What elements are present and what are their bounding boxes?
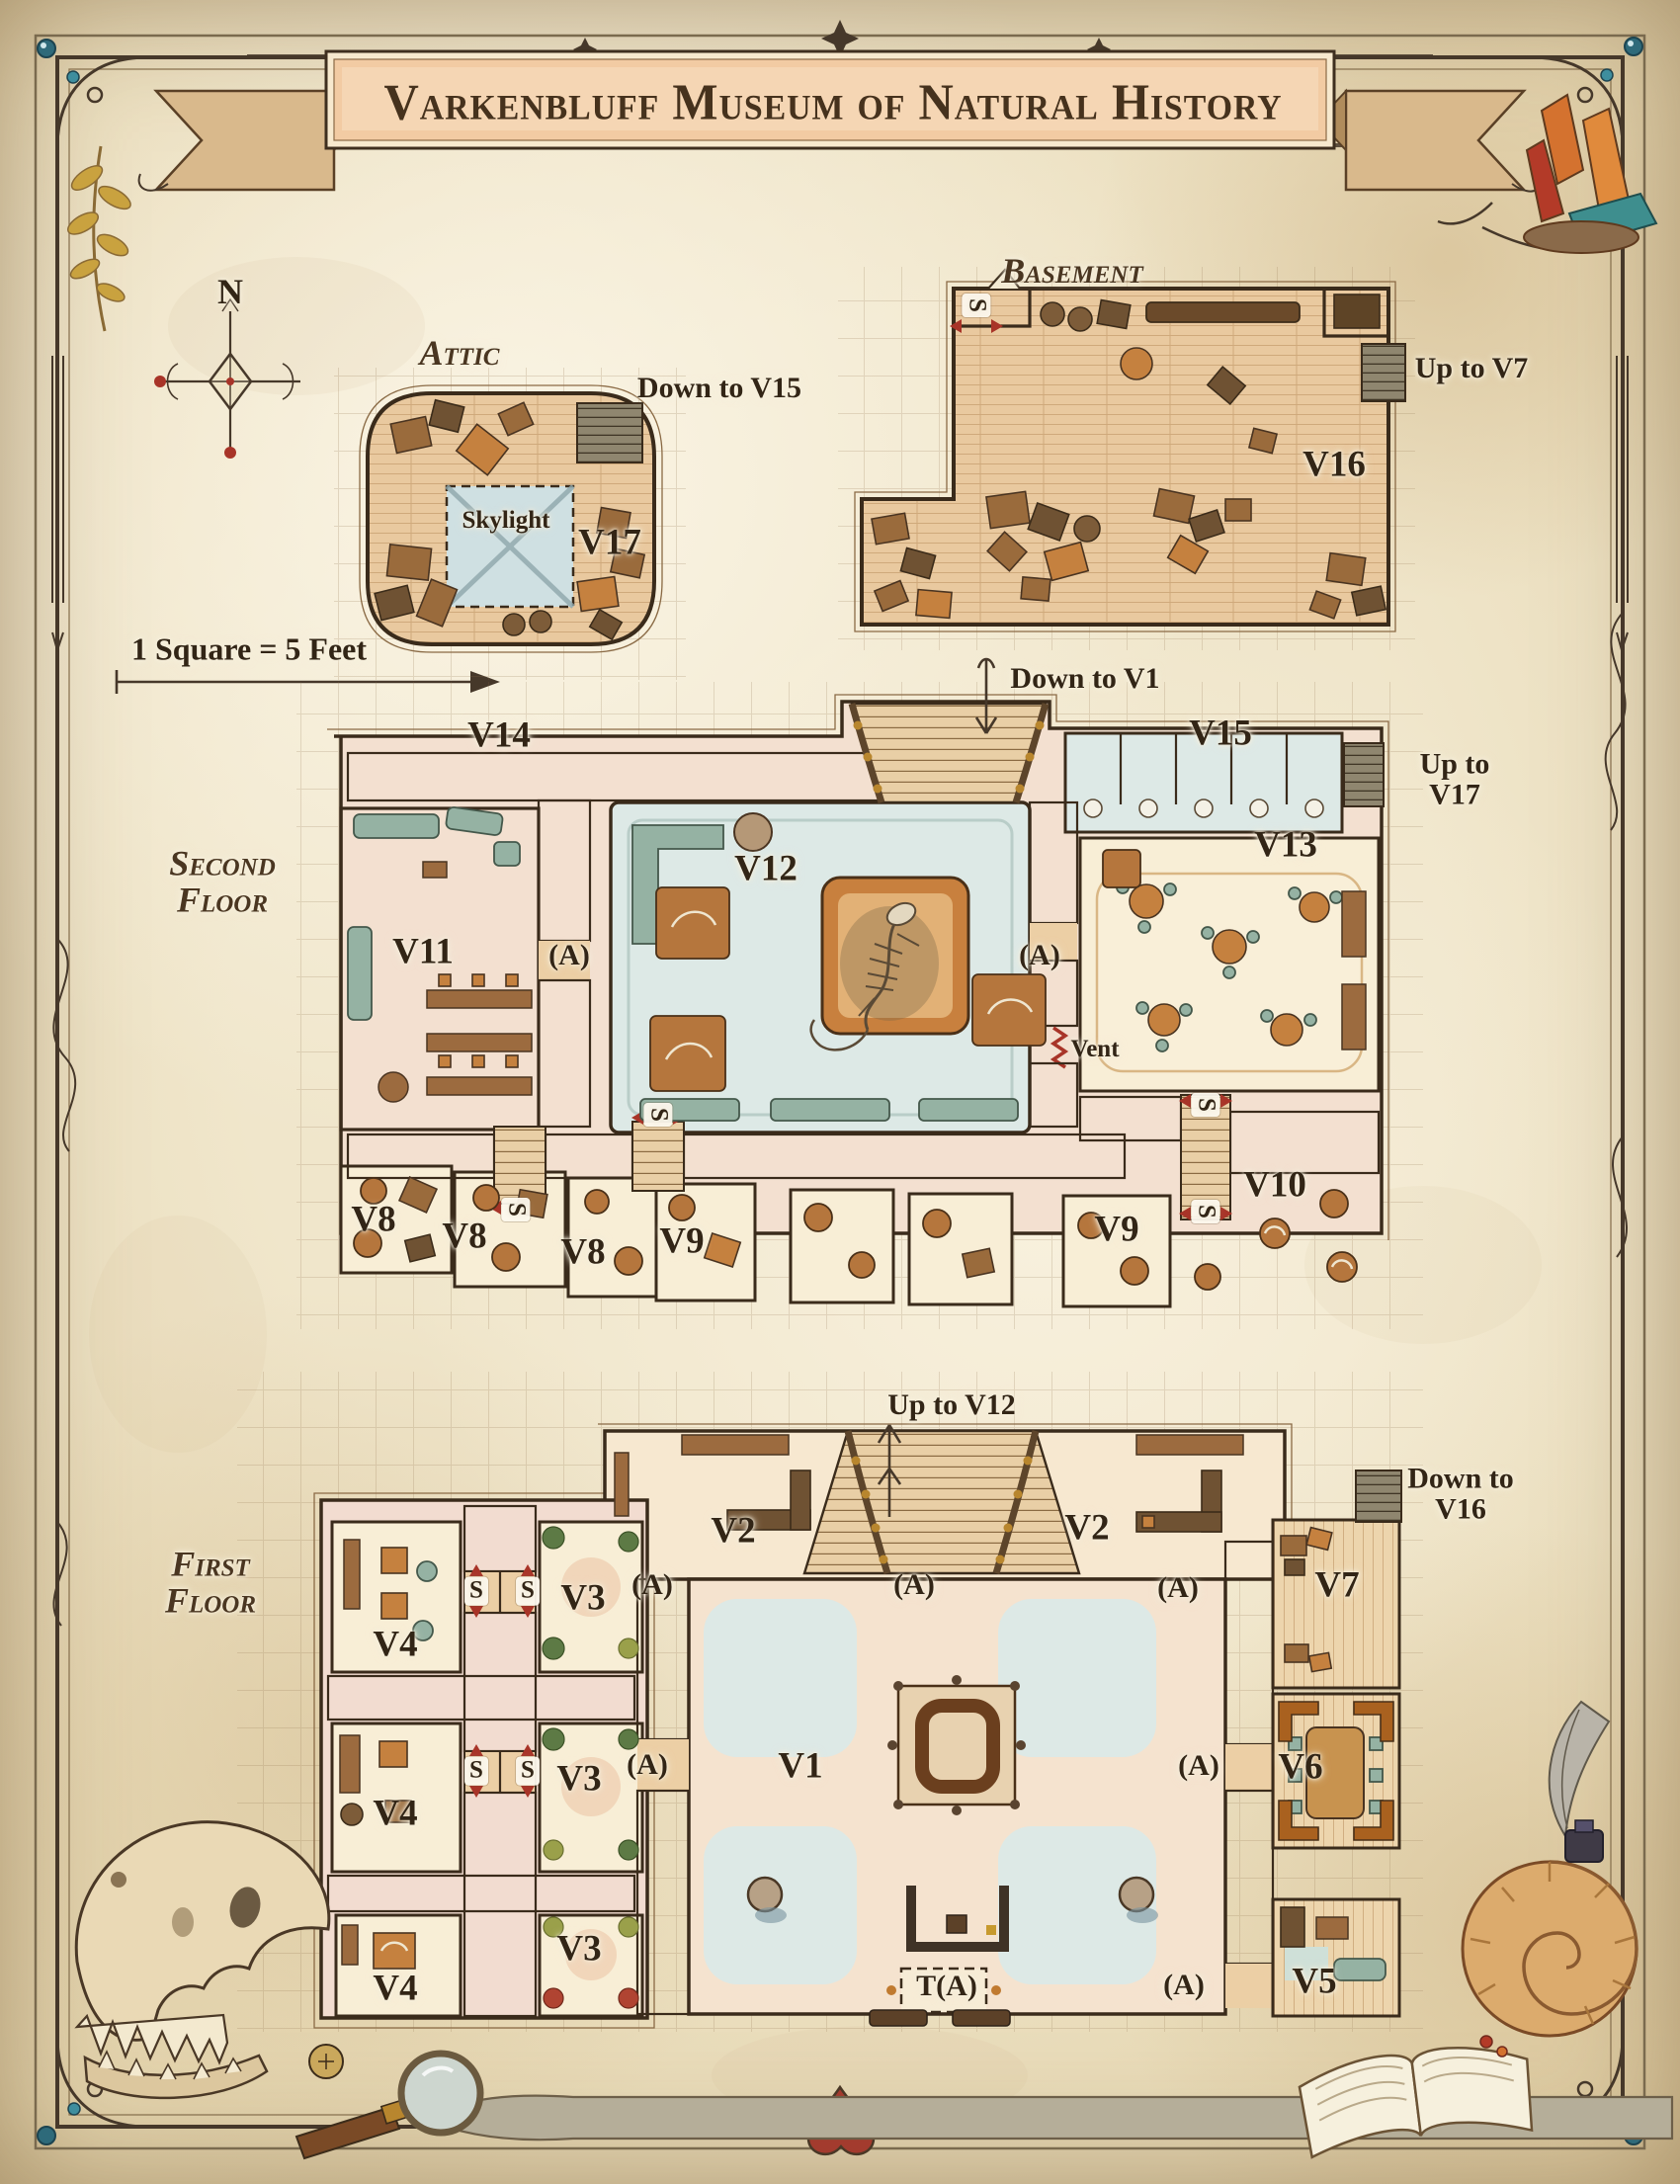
marker-a1: (A)	[631, 1568, 673, 1602]
grand-stairs-second-floor	[852, 704, 1046, 802]
map-artwork	[0, 0, 1680, 2184]
room-v11: V11	[392, 931, 454, 973]
banner-ribbon-left	[156, 91, 334, 190]
room-v4a: V4	[373, 1624, 417, 1666]
room-v8c: V8	[560, 1231, 605, 1274]
stair-marker-ff-s3: S	[464, 1757, 488, 1786]
first-floor-stairs-up-note: Up to V12	[887, 1388, 1015, 1422]
room-v3a: V3	[560, 1577, 605, 1620]
stair-marker-ff-s2: S	[516, 1577, 540, 1606]
room-v5: V5	[1292, 1961, 1336, 2003]
marker-a2: (A)	[893, 1568, 935, 1602]
ammonite-icon	[1463, 1862, 1637, 2036]
vent-label: Vent	[1070, 1036, 1119, 1063]
room-v10: V10	[1243, 1164, 1306, 1207]
room-v4b: V4	[373, 1793, 417, 1835]
room-v6: V6	[1278, 1746, 1322, 1789]
magnifier-icon	[296, 2045, 480, 2158]
scale-note: 1 Square = 5 Feet	[131, 631, 367, 668]
marker-a3: (A)	[1157, 1571, 1199, 1605]
room-v3b: V3	[556, 1758, 601, 1801]
attic-name: Attic	[420, 332, 500, 374]
room-v16: V16	[1302, 444, 1366, 486]
first-floor-name: First Floor	[146, 1546, 275, 1618]
room-v2b: V2	[1064, 1507, 1109, 1550]
room-v12: V12	[734, 848, 798, 890]
room-v2a: V2	[711, 1510, 755, 1553]
room-v4c: V4	[373, 1968, 417, 2010]
room-v13: V13	[1254, 824, 1317, 867]
room-v8a: V8	[351, 1199, 395, 1241]
stair-marker-ff-s4: S	[516, 1757, 540, 1786]
second-floor-stairs-down-note: Down to V1	[1010, 662, 1159, 696]
leaf-sprig-icon	[64, 146, 133, 331]
room-v17: V17	[578, 522, 641, 564]
room-v3c: V3	[556, 1928, 601, 1971]
museum-map-page: Varkenbluff Museum of Natural History N …	[0, 0, 1680, 2184]
stair-marker-s4: S	[1192, 1200, 1220, 1223]
grand-stairs-first-floor	[804, 1431, 1079, 1573]
stair-marker-s3: S	[1192, 1093, 1220, 1117]
room-v9b: V9	[1094, 1209, 1138, 1251]
room-v7: V7	[1314, 1564, 1359, 1607]
stair-marker-s2: S	[502, 1198, 531, 1221]
marker-a6: (A)	[1163, 1969, 1205, 2002]
stair-marker-s1: S	[644, 1103, 673, 1127]
room-v1: V1	[778, 1745, 822, 1788]
room-v15: V15	[1189, 713, 1252, 755]
banner-ribbon-right	[1346, 91, 1524, 190]
second-floor-stairs-up-note: Up to V17	[1396, 749, 1513, 809]
attic-stairs-down-note: Down to V15	[637, 372, 801, 405]
marker-a4: (A)	[627, 1748, 668, 1782]
room-v14: V14	[467, 714, 531, 757]
basement-stairs-up-note: Up to V7	[1415, 352, 1528, 385]
room-v9a: V9	[659, 1220, 704, 1263]
second-floor-name: Second Floor	[133, 845, 311, 917]
skylight-label: Skylight	[462, 507, 550, 535]
basement-stair-marker: S	[963, 294, 991, 317]
room-v8b: V8	[442, 1216, 486, 1258]
first-floor-stairs-down-note: Down to V16	[1396, 1464, 1525, 1524]
marker-a-second-right: (A)	[1019, 939, 1060, 972]
basement-name: Basement	[1001, 250, 1143, 292]
marker-a5: (A)	[1178, 1749, 1219, 1783]
marker-a-second-left: (A)	[548, 939, 590, 972]
stair-marker-ff-s1: S	[464, 1577, 488, 1606]
map-title: Varkenbluff Museum of Natural History	[383, 74, 1282, 132]
compass-n-label: N	[217, 271, 243, 312]
marker-ta: T(A)	[916, 1970, 977, 2003]
